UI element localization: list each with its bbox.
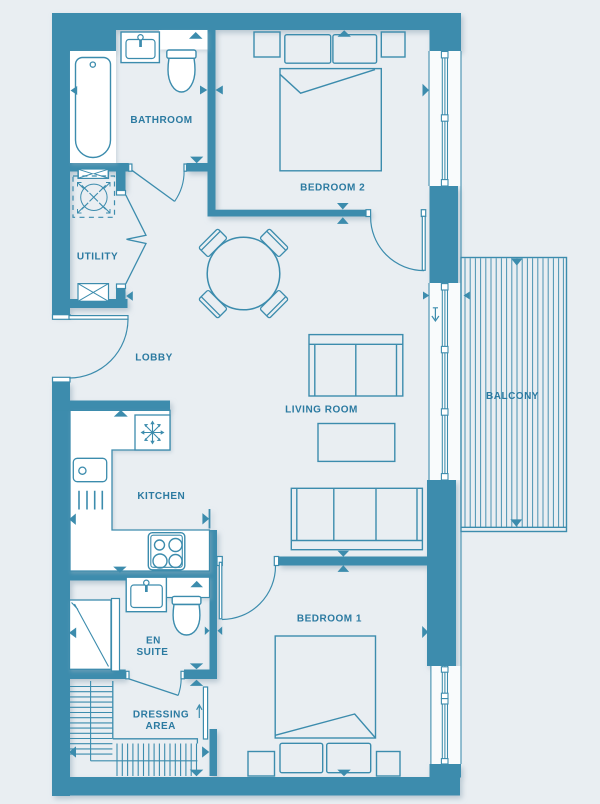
svg-text:BEDROOM 1: BEDROOM 1 bbox=[297, 614, 362, 625]
svg-text:LIVING ROOM: LIVING ROOM bbox=[285, 405, 358, 416]
svg-text:DRESSING: DRESSING bbox=[133, 710, 189, 721]
svg-text:BATHROOM: BATHROOM bbox=[130, 115, 192, 126]
svg-text:KITCHEN: KITCHEN bbox=[137, 491, 185, 502]
svg-text:AREA: AREA bbox=[146, 721, 176, 732]
svg-text:EN: EN bbox=[146, 635, 161, 646]
svg-text:UTILITY: UTILITY bbox=[77, 252, 118, 263]
svg-text:SUITE: SUITE bbox=[137, 647, 169, 658]
svg-text:LOBBY: LOBBY bbox=[135, 353, 173, 364]
svg-text:BEDROOM 2: BEDROOM 2 bbox=[300, 182, 365, 193]
svg-text:BALCONY: BALCONY bbox=[486, 391, 539, 402]
